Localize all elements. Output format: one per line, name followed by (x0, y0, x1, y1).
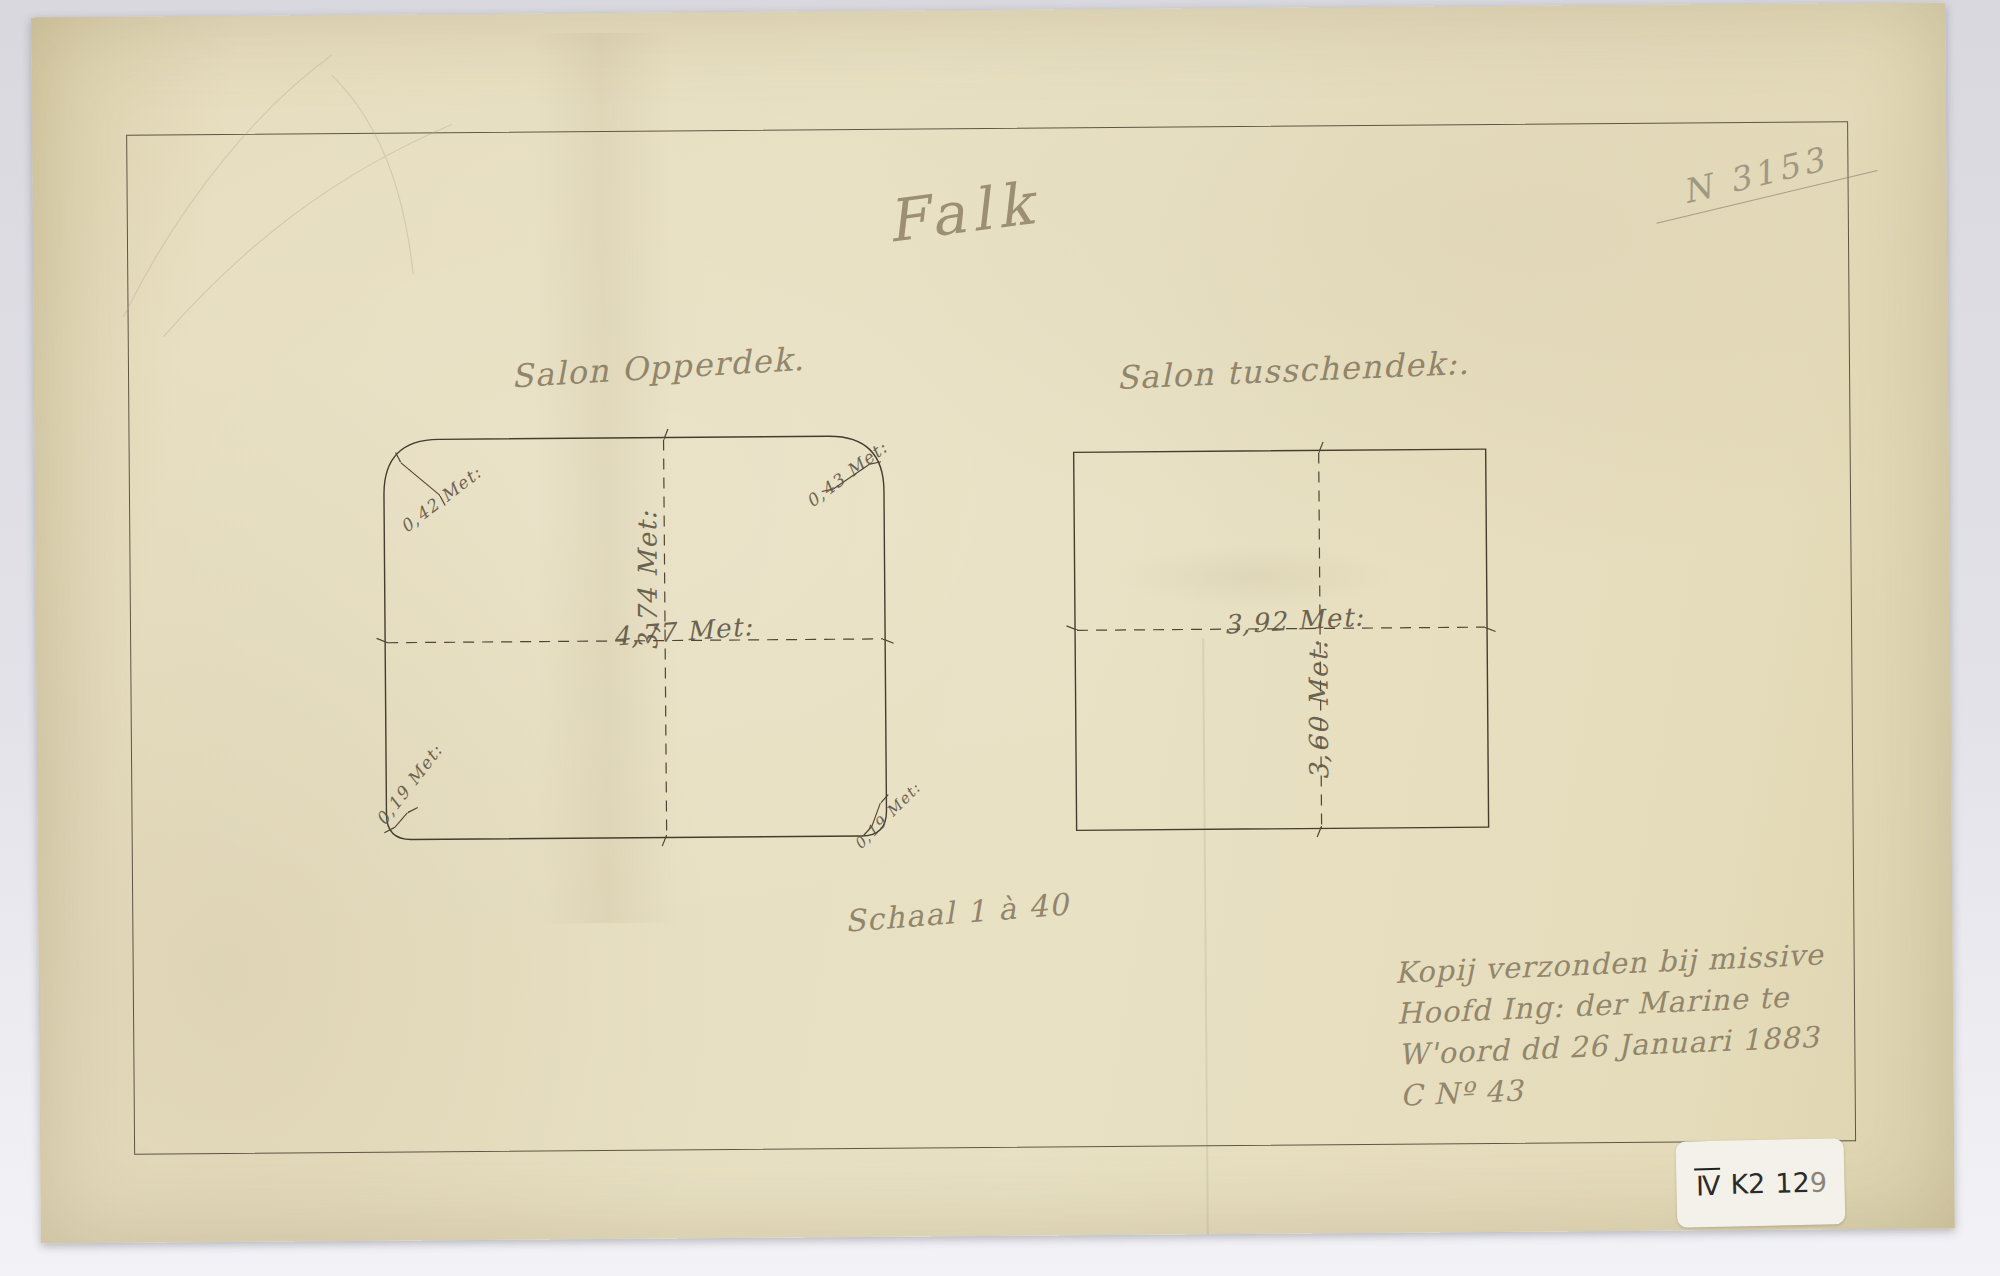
inventory-label-number-light: 9 (1809, 1166, 1827, 1197)
archive-note: Kopij verzonden bij missive Hoofd Ing: d… (1394, 933, 1861, 1117)
inventory-label-number: 129 (1775, 1166, 1827, 1198)
salon-tusschendek-outline (1074, 449, 1489, 830)
inventory-label-roman: IV (1694, 1167, 1721, 1201)
scan-background: { "doc": { "title": "Falk", "reg_no": "N… (0, 0, 2000, 1276)
pencil-scratches (122, 54, 454, 337)
salon-tusschendek-height-dimension: 3,60 Met: (1303, 650, 1334, 780)
inventory-label: IV K2 129 (1676, 1138, 1846, 1228)
inventory-label-code: K2 (1730, 1167, 1766, 1199)
paper-sheet: Falk N 3153 Salon Opperdek. Salon tussch… (31, 3, 1955, 1244)
inventory-label-number-dark: 12 (1775, 1166, 1810, 1198)
